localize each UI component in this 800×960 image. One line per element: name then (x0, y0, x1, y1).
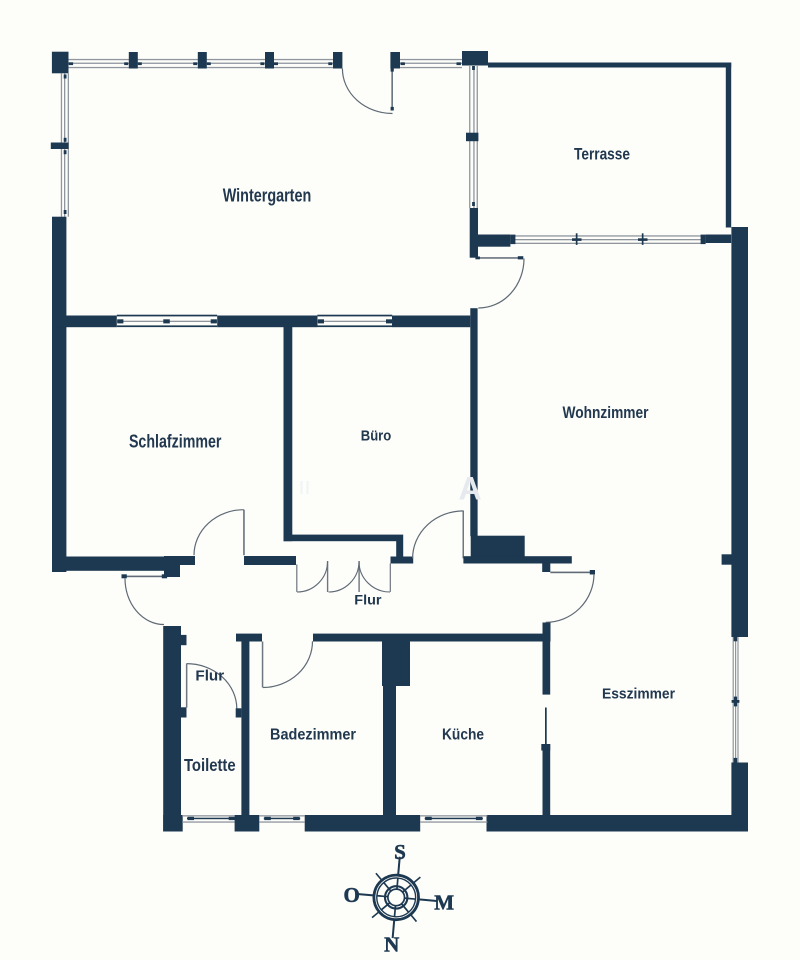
svg-text:Flur: Flur (354, 591, 382, 607)
svg-text:Esszimmer: Esszimmer (602, 686, 675, 703)
svg-text:Flur: Flur (195, 667, 224, 684)
svg-text:A: A (458, 471, 481, 507)
svg-text:Wohnzimmer: Wohnzimmer (563, 404, 649, 422)
svg-text:S: S (394, 840, 406, 864)
svg-text:Toilette: Toilette (184, 755, 236, 775)
svg-text:O: O (344, 883, 360, 907)
svg-text:N: N (384, 933, 399, 957)
svg-text:M: M (434, 891, 454, 915)
svg-text:Schlafzimmer: Schlafzimmer (129, 431, 222, 451)
svg-text:Wintergarten: Wintergarten (223, 185, 312, 205)
svg-text:Badezimmer: Badezimmer (270, 727, 356, 744)
svg-text:Terrasse: Terrasse (574, 144, 630, 163)
svg-text:Büro: Büro (361, 427, 392, 444)
svg-text:Küche: Küche (442, 726, 484, 743)
